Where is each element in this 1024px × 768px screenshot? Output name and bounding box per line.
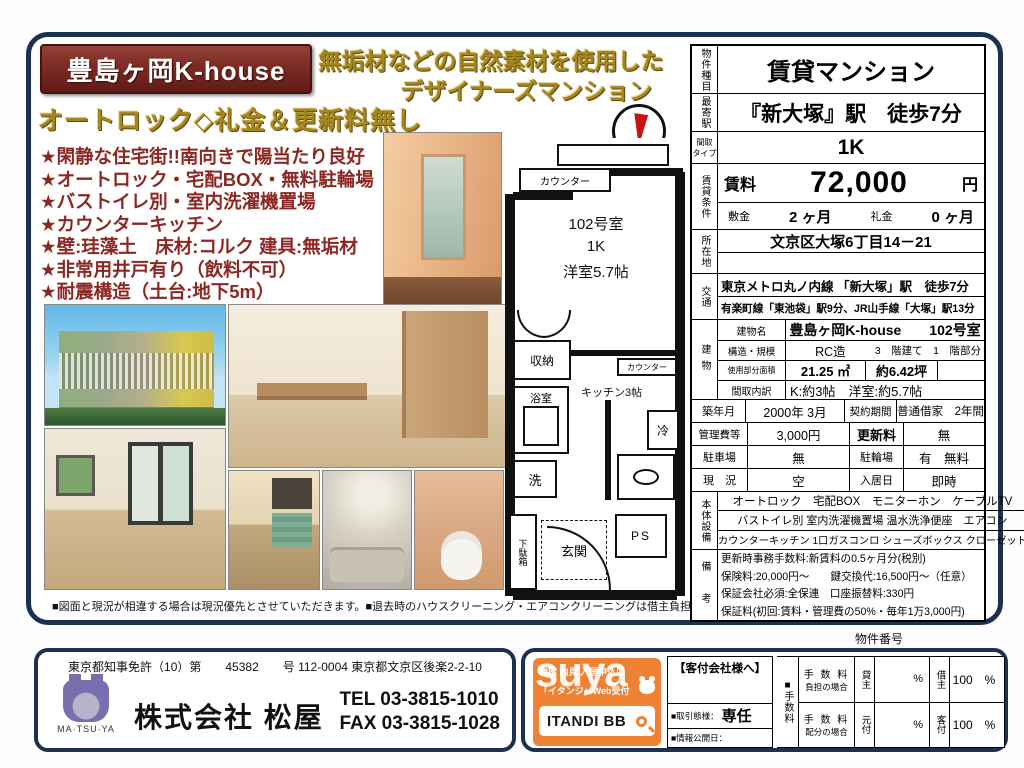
- terms-label: 賃貸条件: [692, 164, 718, 229]
- area-row: 使用部分面積 21.25 ㎡ 約6.42坪: [718, 361, 984, 381]
- renewal-value: 無: [904, 423, 984, 445]
- parking-value: 無: [748, 446, 850, 468]
- fee-label: 手数料: [780, 691, 795, 724]
- keymoney-label: 礼金: [870, 208, 892, 224]
- notes-line: 保証会社必須:全保連 口座振替料:330円: [718, 585, 984, 602]
- address-blank: [718, 253, 984, 273]
- license-number: 東京都知事免許（10）第 45382 号: [68, 660, 295, 674]
- feature-item: ★カウンターキッチン: [40, 214, 385, 237]
- layout-detail-value: K:約3帖 洋室:約5.7帖: [786, 381, 922, 400]
- itandi-bb-logo: ITANDI BB: [539, 706, 655, 736]
- deposit-value: 2 ヶ月: [789, 206, 832, 227]
- magnifier-icon: [636, 716, 647, 727]
- tel-label: TEL: [339, 689, 375, 710]
- publish-date-label: ■情報公開日：: [671, 732, 727, 744]
- deal-type-value: 専任: [722, 705, 752, 726]
- wall: [605, 400, 611, 500]
- company-name: 株式会社 松屋: [134, 696, 324, 736]
- photo-building-exterior: [44, 304, 226, 426]
- layout-label: 間取タイプ: [692, 132, 718, 163]
- row-built: 築年月 2000年 3月 契約期間 普通借家 2年間: [692, 400, 984, 423]
- row-notes: 備 考 更新時事務手数料:新賃料の0.5ヶ月分(税別) 保険料:20,000円～…: [692, 550, 984, 620]
- notes-line: 保証料(初回:賃料・管理費の50%・毎年1万3,000円): [718, 603, 984, 620]
- photo-bathroom: [322, 470, 412, 590]
- property-number-label: 物件番号: [855, 630, 903, 647]
- wardrobe-shape: [406, 311, 489, 437]
- renewal-label: 更新料: [850, 423, 904, 445]
- entrance-floor-shape: [384, 277, 501, 305]
- photo-toilet: [414, 470, 504, 590]
- photo-kitchen: [228, 470, 320, 590]
- feature-item: ★オートロック・宅配BOX・無料駐輪場: [40, 169, 385, 192]
- parking-label: 駐車場: [692, 446, 748, 468]
- photo-main-room: [228, 304, 506, 468]
- area-tsubo: 約6.42坪: [866, 361, 938, 380]
- built-value: 2000年 3月: [746, 400, 845, 422]
- building-name-label: 建物名: [718, 320, 786, 340]
- row-property-type: 物件種目 賃貸マンション: [692, 46, 984, 94]
- keymoney-value: 0 ヶ月: [931, 206, 974, 227]
- deal-type-row: ■取引態様： 専任: [668, 704, 772, 730]
- fee-burden-label: 手 数 料負担の場合: [799, 657, 855, 702]
- contract-label: 契約期間: [845, 400, 897, 422]
- counter-shape: [257, 383, 367, 396]
- row-station: 最寄駅 『新大塚』駅 徒歩7分: [692, 94, 984, 132]
- building-name-value: 豊島ヶ岡K-house 102号室: [786, 320, 984, 340]
- license-line: 東京都知事免許（10）第 45382 号 112-0004 東京都文京区後楽2-…: [38, 658, 512, 675]
- tile-shape: [272, 513, 312, 546]
- window-shape: [128, 442, 193, 525]
- notes-line: 保険料:20,000円～ 鍵交換代:16,500円～（任意）: [718, 568, 984, 585]
- disclaimer: ■図面と現況が相違する場合は現況優先とさせていただきます。■退去時のハウスクリー…: [52, 598, 692, 614]
- company-logo: MA·TSU·YA: [54, 680, 118, 734]
- subtitle: 無垢材などの自然素材を使用した デザイナーズマンション: [316, 46, 666, 106]
- tel-fax-block: TEL 03-3815-1010 FAX 03-3815-1028: [339, 688, 500, 736]
- bicycle-label: 駐輪場: [850, 446, 904, 468]
- counter-label-box: カウンター: [519, 168, 611, 192]
- tel-number: 03-3815-1010: [380, 689, 498, 710]
- station-label: 最寄駅: [692, 94, 718, 131]
- fee-burden-row: 手 数 料負担の場合 貸主 % 借主 100 %: [799, 657, 1004, 703]
- feature-item: ★バストイレ別・室内洗濯機置場: [40, 191, 385, 214]
- equipment-label: 本体設備: [692, 492, 718, 549]
- status-label: 現 況: [692, 469, 748, 491]
- closet-box: 収納: [513, 340, 571, 380]
- suya-watermark: suya: [535, 658, 627, 696]
- room-label: 102号室 1K 洋室5.7帖: [505, 214, 687, 284]
- structure-floors: 3 階建て 1 階部分: [875, 343, 984, 358]
- small-window-shape: [56, 455, 96, 497]
- publish-date-row: ■情報公開日：: [668, 729, 772, 747]
- row-equipment: 本体設備 オートロック 宅配BOX モニターホン ケーブルTV バストイレ別 室…: [692, 492, 984, 550]
- bicycle-value: 有 無料: [904, 446, 984, 468]
- balcony-rails-shape: [59, 353, 214, 389]
- fax-label: FAX: [339, 713, 376, 734]
- lessor-label: 貸主: [855, 657, 875, 702]
- photo-living-room: [44, 428, 226, 590]
- toilet-room-box: [617, 454, 675, 500]
- layout-detail-row: 間取内訳 K:約3帖 洋室:約5.7帖: [718, 381, 984, 400]
- structure-label: 構造・規模: [718, 341, 786, 360]
- balcony-box: [557, 144, 669, 166]
- logo-text: MA·TSU·YA: [54, 724, 118, 734]
- rent-row: 賃料 72,000 円: [718, 164, 984, 203]
- rent-value: 72,000: [756, 166, 962, 200]
- itandi-bb-label: ITANDI BB: [547, 713, 626, 730]
- fax-number: 03-3815-1028: [382, 713, 500, 734]
- toilet-glyph: [633, 469, 659, 485]
- subtitle-line1: 無垢材などの自然素材を使用した: [319, 48, 664, 74]
- shoebox-box: 下駄箱: [509, 514, 537, 590]
- movein-value: 即時: [904, 469, 984, 491]
- bathtub-box: [523, 406, 559, 446]
- rent-label: 賃料: [724, 171, 756, 195]
- lessee-label: 借主: [930, 657, 950, 702]
- contract-value: 普通借家 2年間: [897, 400, 984, 422]
- feature-list: ★閑静な住宅街!!南向きで陽当たり良好 ★オートロック・宅配BOX・無料駐輪場 …: [40, 146, 385, 304]
- row-address: 所在地 文京区大塚6丁目14－21: [692, 230, 984, 274]
- closet-door-arc: [517, 310, 545, 338]
- building-name-row: 建物名 豊島ヶ岡K-house 102号室: [718, 320, 984, 341]
- finding-agent-label: 客付: [930, 703, 950, 748]
- closet-door-arc: [543, 310, 571, 338]
- washer-box: 洗: [513, 460, 557, 498]
- bush-shape: [45, 408, 225, 425]
- rent-unit: 円: [962, 171, 978, 195]
- built-label: 築年月: [692, 400, 746, 422]
- structure-row: 構造・規模 RC造 3 階建て 1 階部分: [718, 341, 984, 361]
- row-access: 交通 東京メトロ丸ノ内線 「新大塚」駅 徒歩7分 有楽町線「東池袋」駅9分、JR…: [692, 274, 984, 320]
- floor-plan: カウンター 102号室 1K 洋室5.7帖 収納 浴室 キッチン3帖 カウンター…: [505, 138, 687, 602]
- agent-box: 物確 内見 入居申込は 「イタンジ」Web受付 suya ITANDI BB 【…: [521, 648, 1008, 752]
- movein-label: 入居日: [850, 469, 904, 491]
- deposit-label: 敷金: [728, 208, 750, 224]
- property-title-box: 豊島ヶ岡K-house: [40, 44, 312, 94]
- property-type-label: 物件種目: [692, 46, 718, 93]
- range-hood-shape: [272, 478, 312, 509]
- area-value: 21.25 ㎡: [786, 361, 866, 380]
- mgmt-value: 3,000円: [748, 423, 850, 445]
- feature-item: ★耐震構造（土台:地下5m）: [40, 281, 385, 304]
- toilet-bowl-shape: [441, 539, 481, 579]
- row-status: 現 況 空 入居日 即時: [692, 469, 984, 492]
- listing-agent-label: 元付: [855, 703, 875, 748]
- station-value: 『新大塚』駅 徒歩7分: [718, 94, 984, 131]
- kitchen-label: キッチン3帖: [581, 384, 642, 400]
- bathtub-shape: [330, 547, 404, 582]
- row-parking: 駐車場 無 駐輪場 有 無料: [692, 446, 984, 469]
- equipment-line2: バストイレ別 室内洗濯機置場 温水洗浄便座 エアコン: [718, 511, 1024, 530]
- address-value: 文京区大塚6丁目14－21: [718, 230, 984, 253]
- deposit-row: 敷金 2 ヶ月 礼金 0 ヶ月: [718, 203, 984, 229]
- access-line2: 有楽町線「東池袋」駅9分、JR山手線「大塚」駅13分: [718, 297, 984, 319]
- layout-detail-label: 間取内訳: [718, 381, 786, 400]
- fee-square-mark: ■: [784, 680, 790, 691]
- row-building: 建物 建物名 豊島ヶ岡K-house 102号室 構造・規模 RC造 3 階建て…: [692, 320, 984, 400]
- spec-table: 物件種目 賃貸マンション 最寄駅 『新大塚』駅 徒歩7分 間取タイプ 1K 賃貸…: [690, 44, 986, 622]
- matsuya-logo-icon: [63, 680, 109, 722]
- feature-item: ★壁:珪藻土 床材:コルク 建具:無垢材: [40, 236, 385, 259]
- deal-type-label: ■取引態様：: [671, 710, 719, 722]
- status-value: 空: [748, 469, 850, 491]
- notes-label: 備 考: [692, 550, 718, 620]
- ps-box: PS: [615, 514, 667, 558]
- agent-info-table: 【客付会社様へ】 ■取引態様： 専任 ■情報公開日：: [667, 656, 773, 748]
- fridge-box: 冷: [647, 410, 679, 450]
- wall: [569, 350, 685, 356]
- feature-item: ★閑静な住宅街!!南向きで陽当たり良好: [40, 146, 385, 169]
- structure-value: RC造: [786, 341, 875, 360]
- fee-split-label: 手 数 料配分の場合: [799, 703, 855, 748]
- listing-agent-pct: %: [875, 703, 930, 748]
- access-label: 交通: [692, 274, 718, 319]
- notes-line: 更新時事務手数料:新賃料の0.5ヶ月分(税別): [718, 550, 984, 567]
- agent-table-header: 【客付会社様へ】: [668, 657, 772, 704]
- feature-item: ★非常用井戸有り（飲料不可）: [40, 259, 385, 282]
- mgmt-label: 管理費等: [692, 423, 748, 445]
- company-address: 112-0004 東京都文京区後楽2-2-10: [298, 660, 482, 674]
- property-title: 豊島ヶ岡K-house: [66, 51, 285, 88]
- fee-table: 手 数 料負担の場合 貸主 % 借主 100 % 手 数 料配分の場合 元付 %…: [799, 656, 1005, 748]
- equipment-line3: カウンターキッチン 1口ガスコンロ シューズボックス クローゼット: [718, 531, 1024, 549]
- finding-agent-pct: 100 %: [950, 703, 1004, 748]
- address-label: 所在地: [692, 230, 718, 273]
- equipment-line1: オートロック 宅配BOX モニターホン ケーブルTV: [718, 492, 1024, 511]
- entrance-door-shape: [421, 154, 465, 261]
- counter2-label-box: カウンター: [617, 358, 677, 376]
- lessor-pct: %: [875, 657, 930, 702]
- area-label: 使用部分面積: [718, 361, 786, 380]
- building-label: 建物: [692, 320, 718, 399]
- fee-vertical-label: ■ 手数料: [777, 656, 799, 748]
- lessee-pct: 100 %: [950, 657, 1004, 702]
- wall: [605, 168, 683, 176]
- bear-mascot-icon: [639, 680, 655, 694]
- wall: [513, 192, 573, 200]
- company-box: 東京都知事免許（10）第 45382 号 112-0004 東京都文京区後楽2-…: [34, 648, 516, 752]
- row-mgmt: 管理費等 3,000円 更新料 無: [692, 423, 984, 446]
- photo-entrance: [383, 132, 502, 306]
- fee-split-row: 手 数 料配分の場合 元付 % 客付 100 %: [799, 703, 1004, 748]
- row-terms: 賃貸条件 賃料 72,000 円 敷金 2 ヶ月 礼金 0 ヶ月: [692, 164, 984, 230]
- itandi-banner: 物確 内見 入居申込は 「イタンジ」Web受付 suya ITANDI BB: [533, 658, 661, 746]
- property-type-value: 賃貸マンション: [718, 46, 984, 93]
- row-layout: 間取タイプ 1K: [692, 132, 984, 164]
- access-line1: 東京メトロ丸ノ内線 「新大塚」駅 徒歩7分: [718, 274, 984, 297]
- layout-value: 1K: [718, 132, 984, 163]
